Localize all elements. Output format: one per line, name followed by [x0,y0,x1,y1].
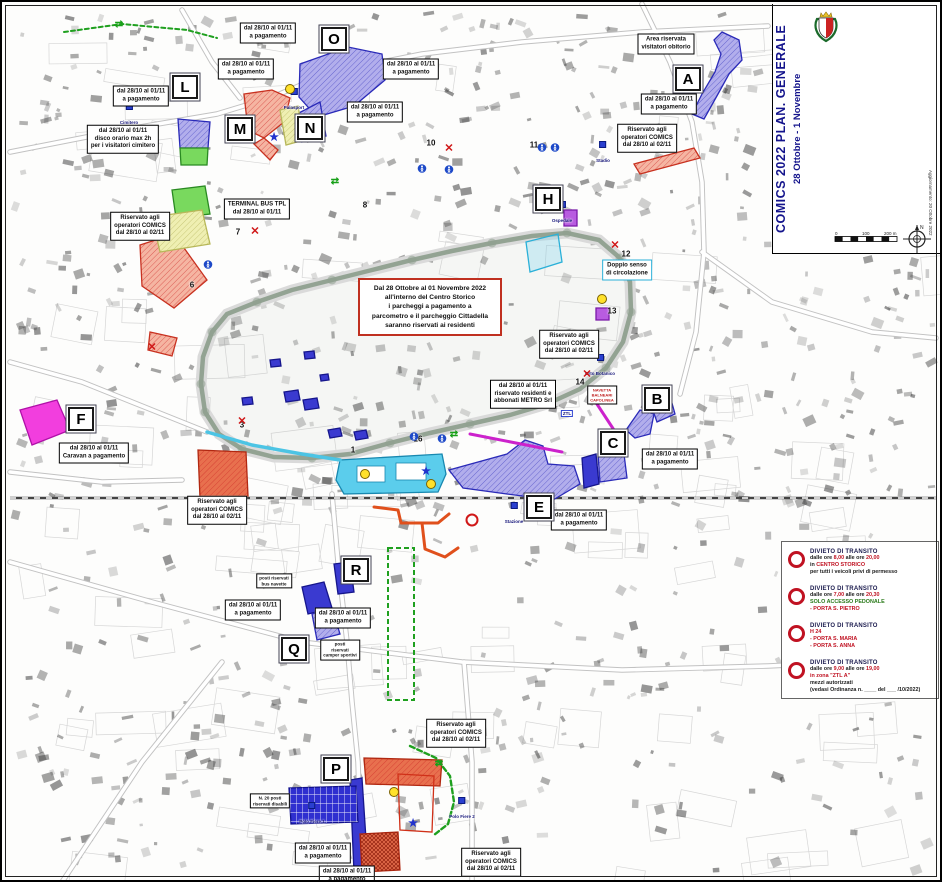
annotation-box: dal 28/10 al 01/11a pagamento [347,102,403,123]
zone-bluesolid [242,397,253,405]
vehicle-access-icon: ⇄ [115,20,123,30]
transit-text: DIVIETO DI TRANSITOdalle ore 9,00 alle o… [810,660,920,694]
welcome-desk-icon [389,787,399,797]
centro-storico-notice: Dal 28 Ottobre al 01 Novembre 2022 all'i… [358,278,502,336]
transit-segment: dalle ore [810,666,834,672]
place-marker-icon [458,797,465,804]
annotation-line: operatori COMICS [543,340,595,348]
map-sheet: ABCEFHLMNOPQR13678101112131416dal 28/10 … [0,0,942,882]
annotation-line: dal 28/10 al 01/11 [323,869,371,877]
transit-segment: CENTRO STORICO [816,562,865,568]
no-transit-icon [788,551,805,568]
place-label-stazione: Stazione [505,502,524,528]
scale-label-200: 200 m [884,231,897,236]
transit-item: DIVIETO DI TRANSITOH 24- PORTA S. MARIA-… [788,623,933,650]
transit-text: DIVIETO DI TRANSITOH 24- PORTA S. MARIA-… [810,623,878,650]
place-label-polo-fiere-1: Polo Fiere 1 [299,802,325,828]
parking-marker-C: C [600,431,626,455]
transit-line: per tutti i veicoli privi di permesso [810,569,897,576]
annotation-line: riservati disabili [253,801,287,807]
annotation-line: dal 28/10 al 02/11 [621,142,673,150]
transit-segment: - PORTA S. ANNA [810,643,855,649]
annotation-box: dal 28/10 al 01/11a pagamento [295,843,351,864]
transit-line: SOLO ACCESSO PEDONALE [810,599,885,606]
annotation-box: Doppio sensodi circolazione [602,260,652,281]
parking-marker-F: F [68,407,94,431]
transit-text: DIVIETO DI TRANSITOdalle ore 8,00 alle o… [810,549,897,576]
annotation-line: a pagamento [319,618,367,626]
annotation-line: dal 28/10 al 01/11 [63,446,125,454]
annotation-box: Area riservatavisitatori obitorio [637,34,694,55]
no-transit-icon [788,588,805,605]
transit-line: dalle ore 8,00 alle ore 20,00 [810,555,897,562]
annotation-line: dal 28/10 al 01/11 [91,128,155,136]
transit-segment: 8,00 [834,555,845,561]
transit-line: - PORTA S. PIETRO [810,606,885,613]
zone-green [180,148,208,165]
route-point-12: 12 [622,250,631,259]
transit-item: DIVIETO DI TRANSITOdalle ore 9,00 alle o… [788,660,933,694]
welcome-desk-icon [360,469,370,479]
annotation-line: a pagamento [323,876,371,882]
zone-bluesolid [354,430,368,440]
taxi-icon: ★ [269,133,279,144]
annotation-line: visitatori obitorio [641,44,690,52]
notice-line: all'interno del Centro Storico [363,293,497,302]
parking-marker-E: E [526,495,552,519]
road-closure-icon: ✕ [582,370,591,381]
transit-text: DIVIETO DI TRANSITOdalle ore 7,00 alle o… [810,586,885,613]
zone-bluesolid [284,390,300,402]
pedestrian-access-icon [418,161,427,177]
transit-segment: mezzi autorizzati [810,680,853,686]
annotation-line: a pagamento [351,112,399,120]
transit-line: mezzi autorizzati [810,680,920,687]
transit-segment: alle ore [844,592,866,598]
scale-label-100: 100 [862,231,870,236]
notice-line: Dal 28 Ottobre al 01 Novembre 2022 [363,284,497,293]
annotation-line: operatori COMICS [621,134,673,142]
annotation-line: a pagamento [229,610,277,618]
transit-segment: 7,00 [834,592,845,598]
annotation-line: a pagamento [222,69,270,77]
place-label-text: Stazione [505,519,524,524]
transit-line: in zona "ZTL A" [810,673,920,680]
place-marker-icon [510,502,517,509]
update-note: Aggiornamento: 20 Ottobre 2022 [928,170,933,248]
annotation-line: posti riservati [259,575,289,581]
annotation-box: NAVETTABALNEARICAPOLINEA [587,386,617,405]
road-closure-icon: ✕ [610,241,619,252]
annotation-line: dal 28/10 al 01/11 [222,62,270,70]
annotation-box: dal 28/10 al 01/11a pagamento [218,59,274,80]
notice-line: parcometro e il parcheggio Cittadella [363,312,497,321]
plan-dates: 28 Ottobre - 1 Novembre [792,8,805,250]
annotation-line: Riservato agli [621,127,673,135]
no-transit-icon [466,514,479,527]
vehicle-access-icon: ⇄ [450,430,458,440]
transit-segment: in zona "ZTL A" [810,673,850,679]
vehicle-access-icon: ⇄ [435,759,443,769]
annotation-line: Caravan a pagamento [63,453,125,461]
annotation-box: Riservato aglioperatori COMICSdal 28/10 … [426,719,486,748]
transit-segment: (vedasi Ordinanza n. ____ del ___ /10/20… [810,687,920,693]
notice-line: i parcheggi a pagamento a [363,302,497,311]
transit-segment: alle ore [844,666,866,672]
annotation-line: dal 28/10 al 02/11 [543,348,595,356]
route-point-6: 6 [190,281,194,290]
route-point-13: 13 [608,307,617,316]
annotation-line: di circolazione [606,270,648,278]
annotation-line: operatori COMICS [465,858,517,866]
annotation-line: bus navette [259,581,289,587]
place-label-polo-fiere-2: Polo Fiere 2 [449,797,475,823]
annotation-line: dal 28/10 al 01/11 [229,603,277,611]
annotation-line: a pagamento [387,69,435,77]
annotation-box: postiriservaticamper sportivi [320,640,360,661]
transit-line: - PORTA S. MARIA [810,636,878,643]
transit-item: DIVIETO DI TRANSITOdalle ore 8,00 alle o… [788,549,933,576]
parking-marker-H: H [535,187,561,211]
parking-marker-M: M [227,117,253,141]
annotation-line: Area riservata [641,37,690,45]
place-marker-icon [599,141,606,148]
welcome-desk-icon [285,84,295,94]
annotation-line: Riservato agli [543,333,595,341]
transit-segment: - PORTA S. PIETRO [810,606,860,612]
place-label-text: Stadio [596,158,610,163]
annotation-line: dal 28/10 al 02/11 [465,866,517,874]
annotation-box: Riservato aglioperatori COMICSdal 28/10 … [461,848,521,877]
road-closure-icon: ✕ [444,144,453,155]
annotation-box: dal 28/10 al 01/11Caravan a pagamento [59,443,129,464]
place-label-text: Palasport [284,105,305,110]
parking-marker-L: L [172,75,198,99]
place-label-text: Ospedale [552,218,572,223]
no-transit-icon [788,625,805,642]
annotation-line: dal 28/10 al 01/11 [645,97,693,105]
plan-title: COMICS 2022 PLAN. GENERALE [774,8,791,250]
annotation-line: camper sportivi [323,653,357,659]
road-closure-icon: ✕ [147,343,156,354]
no-transit-icon [788,662,805,679]
route-point-1: 1 [351,446,355,455]
annotation-line: dal 28/10 al 02/11 [191,514,243,522]
annotation-line: operatori COMICS [191,506,243,514]
route-point-7: 7 [236,228,240,237]
annotation-line: dal 28/10 al 02/11 [430,737,482,745]
annotation-line: dal 28/10 al 01/11 [494,383,552,391]
transit-segment: dalle ore [810,555,834,561]
transit-item: DIVIETO DI TRANSITOdalle ore 7,00 alle o… [788,586,933,613]
zone-bluesolid [303,398,319,410]
transit-segment: SOLO ACCESSO PEDONALE [810,599,885,605]
transit-segment: dalle ore [810,592,834,598]
annotation-box: posti riservatibus navette [256,573,292,588]
annotation-box: Riservato aglioperatori COMICSdal 28/10 … [187,496,247,525]
annotation-box: Riservato aglioperatori COMICSdal 28/10 … [539,330,599,359]
annotation-box: dal 28/10 al 01/11a pagamento [319,866,375,882]
annotation-line: Doppio senso [606,263,648,271]
annotation-line: per i visitatori cimitero [91,143,155,151]
annotation-box: TERMINAL BUS TPLdal 28/10 al 01/11 [224,199,290,220]
transit-segment: H 24 [810,629,821,635]
annotation-box: dal 28/10 al 01/11riservato residenti ea… [490,380,556,409]
parking-marker-O: O [321,27,347,51]
annotation-box: dal 28/10 al 01/11a pagamento [641,94,697,115]
transit-segment: alle ore [844,555,866,561]
road-closure-icon: ✕ [250,227,259,238]
annotation-line: dal 28/10 al 01/11 [555,513,603,521]
annotation-line: dal 28/10 al 01/11 [299,846,347,854]
annotation-line: dal 28/10 al 01/11 [646,452,694,460]
pedestrian-access-icon [410,429,419,445]
route-point-10: 10 [427,139,436,148]
vehicle-access-icon: ⇄ [331,177,339,187]
annotation-line: a pagamento [555,520,603,528]
parking-marker-N: N [297,116,323,140]
transit-prohibition-box: DIVIETO DI TRANSITOdalle ore 8,00 alle o… [781,541,939,699]
annotation-line: Riservato agli [191,499,243,507]
pedestrian-access-icon [438,431,447,447]
place-label-text: ZTL [561,410,573,417]
annotation-line: operatori COMICS [430,729,482,737]
annotation-line: disco orario max 2h [91,135,155,143]
transit-segment: 9,00 [834,666,845,672]
transit-line: dalle ore 9,00 alle ore 19,00 [810,666,920,673]
transit-line: (vedasi Ordinanza n. ____ del ___ /10/20… [810,687,920,694]
annotation-line: dal 28/10 al 01/11 [117,89,165,97]
transit-segment: 20,00 [866,555,880,561]
route-point-8: 8 [363,201,367,210]
transit-segment: - PORTA S. MARIA [810,636,857,642]
scale-bar: 0 100 200 m [834,230,900,244]
zone-bluesolid [582,454,599,488]
transit-segment: 20,30 [866,592,880,598]
annotation-line: riservato residenti e [494,390,552,398]
parking-marker-P: P [323,757,349,781]
pedestrian-access-icon [204,257,213,273]
pedestrian-access-icon [445,162,454,178]
taxi-icon: ★ [408,819,418,830]
annotation-box: Riservato aglioperatori COMICSdal 28/10 … [617,124,677,153]
coat-of-arms [814,9,838,43]
annotation-line: dal 28/10 al 01/11 [351,105,399,113]
place-label-stadio: Stadio [596,141,610,167]
annotation-line: Riservato agli [465,851,517,859]
zone-bluesolid [320,374,329,381]
annotation-box: N. 20 postiriservati disabili [250,793,290,808]
annotation-line: TERMINAL BUS TPL [228,202,286,210]
svg-text:N: N [920,225,924,231]
annotation-line: Riservato agli [430,722,482,730]
welcome-desk-icon [426,479,436,489]
annotation-line: a pagamento [117,96,165,104]
place-label-ztl: ZTL [561,402,573,420]
annotation-box: Riservato aglioperatori COMICSdal 28/10 … [110,212,170,241]
transit-segment: 19,00 [866,666,880,672]
transit-line: - PORTA S. ANNA [810,643,878,650]
annotation-line: dal 28/10 al 02/11 [114,230,166,238]
annotation-line: CAPOLINEA [590,398,614,403]
road-closure-icon: ✕ [237,417,246,428]
transit-line: H 24 [810,629,878,636]
annotation-box: dal 28/10 al 01/11a pagamento [383,59,439,80]
annotation-box: dal 28/10 al 01/11a pagamento [225,600,281,621]
zone-magenta [20,400,70,445]
annotation-box: dal 28/10 al 01/11a pagamento [551,510,607,531]
annotation-box: dal 28/10 al 01/11a pagamento [315,608,371,629]
transit-line: dalle ore 7,00 alle ore 20,30 [810,592,885,599]
annotation-box: dal 28/10 al 01/11a pagamento [113,86,169,107]
annotation-box: dal 28/10 al 01/11disco orario max 2hper… [87,125,159,154]
zone-bluesolid [328,428,342,438]
annotation-line: a pagamento [646,459,694,467]
parking-marker-Q: Q [281,637,307,661]
taxi-icon: ★ [421,467,431,478]
transit-line: in CENTRO STORICO [810,562,897,569]
parking-marker-B: B [644,387,670,411]
notice-line: saranno riservati ai residenti [363,321,497,330]
annotation-line: dal 28/10 al 01/11 [244,26,292,34]
annotation-line: a pagamento [244,33,292,41]
annotation-line: dal 28/10 al 01/11 [319,611,367,619]
zone-bluesolid [270,359,281,367]
transit-segment: per tutti i veicoli privi di permesso [810,569,897,575]
welcome-desk-icon [597,294,607,304]
pedestrian-access-icon [538,140,547,156]
place-label-text: Polo Fiere 2 [449,814,475,819]
annotation-line: Riservato agli [114,215,166,223]
place-marker-icon [308,802,315,809]
annotation-line: dal 28/10 al 01/11 [228,209,286,217]
parking-marker-A: A [675,67,701,91]
annotation-box: dal 28/10 al 01/11a pagamento [642,449,698,470]
pedestrian-access-icon [551,140,560,156]
scale-label-0: 0 [835,231,838,236]
annotation-line: abbonati METRO Srl [494,398,552,406]
annotation-line: a pagamento [299,853,347,861]
place-label-text: Polo Fiere 1 [299,819,325,824]
annotation-line: operatori COMICS [114,222,166,230]
annotation-box: dal 28/10 al 01/11a pagamento [240,23,296,44]
annotation-line: dal 28/10 al 01/11 [387,62,435,70]
annotation-line: a pagamento [645,104,693,112]
parking-marker-R: R [343,558,369,582]
zone-bluesolid [304,351,315,359]
